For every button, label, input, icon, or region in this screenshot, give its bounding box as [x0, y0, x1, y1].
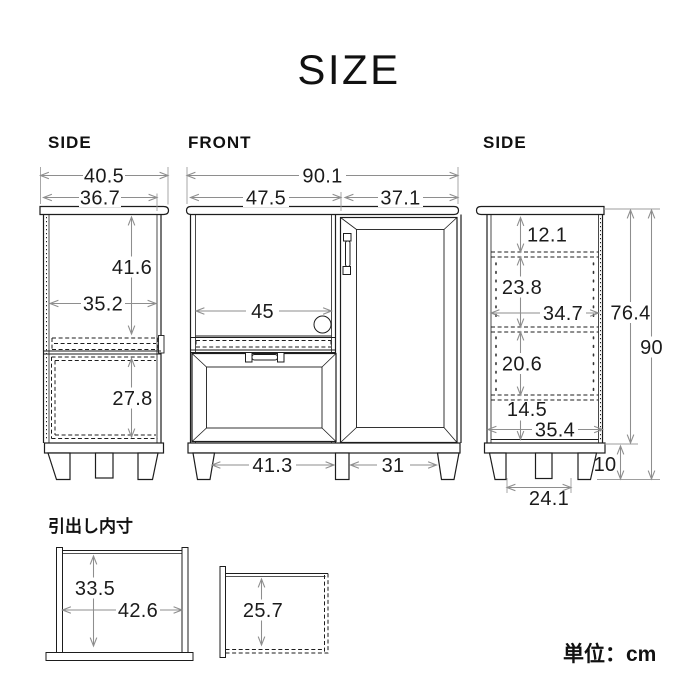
cord-hole [314, 316, 331, 333]
plinth [45, 443, 164, 453]
drawer-inner-section: 引出し内寸 33.5 42.6 25.7 [46, 516, 328, 661]
side-view-left: 40.5 36.7 41.6 35.2 27.8 [40, 166, 169, 480]
dim-body-depth: 36.7 [80, 188, 120, 210]
page-title: SIZE [297, 46, 400, 93]
leg [138, 453, 158, 480]
dim-inner-depth: 35.2 [83, 294, 123, 316]
dim-drawer-inner-depth-height: 25.7 [243, 600, 283, 622]
label-side-right: SIDE [483, 133, 527, 152]
dim-drawer-inner-width: 42.6 [118, 600, 158, 622]
side-view-right: 12.1 23.8 34.7 20.6 14.5 35.4 76.4 [477, 207, 667, 511]
plinth [485, 443, 606, 453]
dim-bottom-depth: 35.4 [535, 420, 575, 442]
leg [536, 453, 553, 479]
drawer-inner-label: 引出し内寸 [48, 516, 133, 536]
dim-lower-height: 27.8 [112, 388, 152, 410]
dim-body-height: 76.4 [610, 303, 650, 325]
legs [490, 453, 597, 480]
dim-leg-height: 10 [594, 454, 617, 476]
dim-upper-section: 23.8 [502, 277, 542, 299]
top-slab [477, 207, 605, 215]
dim-total-height: 90 [640, 337, 663, 359]
cabinet-door [341, 218, 458, 443]
drawer-base [46, 653, 193, 661]
drawer-side-wall [182, 548, 188, 653]
leg [438, 453, 460, 480]
front-view: 90.1 47.5 37.1 45 41.3 31 [187, 166, 462, 480]
label-front: FRONT [188, 133, 252, 152]
size-diagram: SIZE SIDE FRONT SIDE [0, 0, 700, 700]
drawer-side-wall [57, 548, 63, 653]
size-diagram-page: SIZE SIDE FRONT SIDE [0, 0, 700, 700]
dim-leg-gap: 24.1 [529, 488, 569, 510]
leg [96, 453, 114, 478]
dim-leg-gap-right: 31 [382, 455, 405, 477]
dim-total-depth: 40.5 [84, 166, 124, 188]
drawer-front [192, 353, 336, 442]
dim-mid-depth: 34.7 [543, 303, 583, 325]
dim-left-width: 47.5 [246, 188, 286, 210]
slide-shelf-hidden [44, 336, 165, 355]
slide-tray [191, 336, 337, 353]
leg [336, 453, 350, 480]
dim-opening-width: 45 [251, 301, 274, 323]
dim-leg-gap-left: 41.3 [252, 455, 292, 477]
unit-label: 単位：cm [563, 642, 656, 666]
dim-total-width: 90.1 [302, 166, 342, 188]
dim-bottom-section: 14.5 [507, 399, 547, 421]
plinth [188, 443, 460, 453]
leg [490, 453, 507, 480]
legs [193, 453, 459, 480]
legs [48, 453, 158, 480]
dim-right-width: 37.1 [380, 188, 420, 210]
leg [48, 453, 70, 480]
label-side-left: SIDE [48, 133, 92, 152]
dim-upper-height: 41.6 [112, 257, 152, 279]
dim-lower-section: 20.6 [502, 354, 542, 376]
drawer-side-inner-view: 25.7 [220, 567, 328, 658]
slide-rail-bracket [159, 336, 165, 354]
dim-drawer-inner-height: 33.5 [75, 578, 115, 600]
dim-top-section: 12.1 [527, 225, 567, 247]
drawer-front-wall [220, 567, 226, 658]
dimensions: 12.1 23.8 34.7 20.6 14.5 35.4 76.4 [488, 209, 666, 510]
leg [193, 453, 215, 480]
drawer-front-inner-view: 33.5 42.6 [46, 548, 193, 661]
